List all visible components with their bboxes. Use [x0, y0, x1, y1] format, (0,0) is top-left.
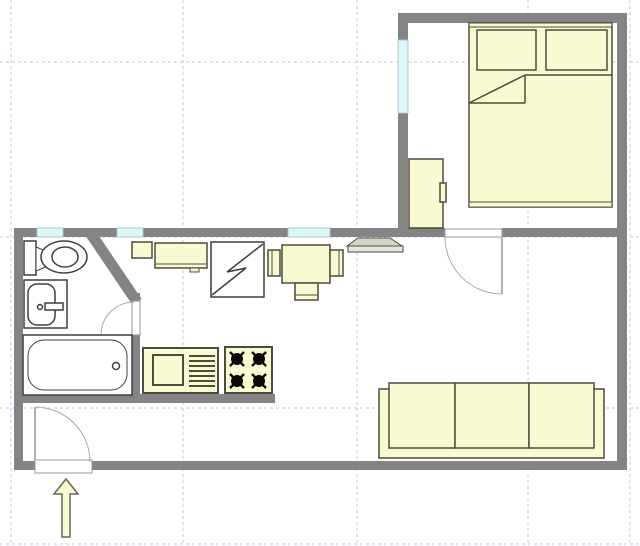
bathroom-door: [101, 301, 140, 335]
dining-chair-bottom-shape: [295, 283, 318, 300]
window-kitchen-shape: [117, 228, 143, 237]
dining-table-shape: [282, 245, 330, 283]
entrance-door-shape: [35, 407, 90, 462]
refrigerator: [211, 242, 264, 297]
floor-plan: [0, 0, 640, 546]
dining-chair-right: [330, 250, 343, 276]
walls-shape: [398, 113, 408, 237]
wardrobe-shape: [440, 183, 446, 202]
walls-shape: [92, 461, 627, 470]
dining-chair-right-shape: [330, 250, 343, 276]
walls-shape: [502, 228, 617, 237]
sofa: [379, 383, 604, 458]
bathroom-door-shape: [132, 301, 140, 335]
stove-shape: [231, 375, 243, 387]
bathtub: [23, 335, 132, 395]
walls-shape: [14, 228, 23, 470]
bedroom-door-shape: [445, 237, 502, 294]
walls-shape: [14, 461, 35, 470]
kitchen-shelf-shape: [132, 242, 152, 258]
sofa-shape: [389, 383, 455, 448]
stove-shape: [253, 375, 265, 387]
bed-shape: [546, 30, 607, 70]
kitchen-shelf: [132, 242, 152, 258]
walls-shape: [132, 335, 140, 403]
bed-shape: [469, 202, 612, 207]
window-bathroom-shape: [37, 228, 63, 237]
range-hood-shape: [347, 238, 402, 246]
kitchen-cabinet-shape: [190, 268, 199, 272]
dining-chair-left-shape: [268, 250, 280, 276]
bed: [469, 23, 612, 207]
dining-table: [282, 245, 330, 283]
bedroom-door-shape: [445, 229, 502, 237]
toilet-shape: [24, 241, 36, 275]
range-hood-shape: [348, 246, 403, 252]
walls-shape: [330, 228, 445, 237]
bed-shape: [469, 23, 612, 27]
window-kitchen: [117, 228, 143, 237]
walls-shape: [91, 234, 137, 302]
floor-plan-svg: [0, 0, 640, 546]
kitchen-counter-sink: [143, 348, 218, 393]
sofa-shape: [529, 383, 594, 448]
toilet: [24, 241, 87, 275]
bathroom-sink-shape: [45, 303, 63, 310]
bathroom-door-shape: [101, 302, 134, 335]
stove: [225, 347, 272, 393]
wardrobe: [409, 159, 446, 228]
sofa-shape: [455, 383, 529, 448]
kitchen-cabinet: [155, 243, 207, 272]
walls-shape: [143, 228, 288, 237]
entrance-door: [35, 407, 92, 473]
window-bedroom: [398, 40, 408, 113]
bathroom-sink: [24, 280, 67, 328]
toilet-shape: [52, 247, 78, 267]
window-bedroom-shape: [398, 40, 408, 113]
walls-shape: [398, 13, 627, 23]
dining-chair-left: [268, 250, 280, 276]
stove-shape: [253, 353, 265, 365]
bedroom-door: [445, 229, 502, 294]
range-hood: [347, 238, 403, 252]
wardrobe-shape: [409, 159, 443, 228]
entrance-arrow-shape: [54, 479, 78, 537]
bathtub-shape: [113, 363, 120, 370]
walls-shape: [398, 13, 408, 40]
entrance-arrow: [54, 479, 78, 537]
window-bathroom: [37, 228, 63, 237]
kitchen-counter-sink-shape: [153, 355, 183, 385]
dining-chair-bottom: [295, 283, 318, 300]
stove-shape: [231, 353, 243, 365]
walls-shape: [617, 13, 627, 470]
window-dining: [288, 228, 330, 237]
window-dining-shape: [288, 228, 330, 237]
bed-shape: [477, 30, 536, 70]
entrance-door-shape: [35, 460, 92, 473]
bathroom-sink-shape: [38, 305, 43, 310]
